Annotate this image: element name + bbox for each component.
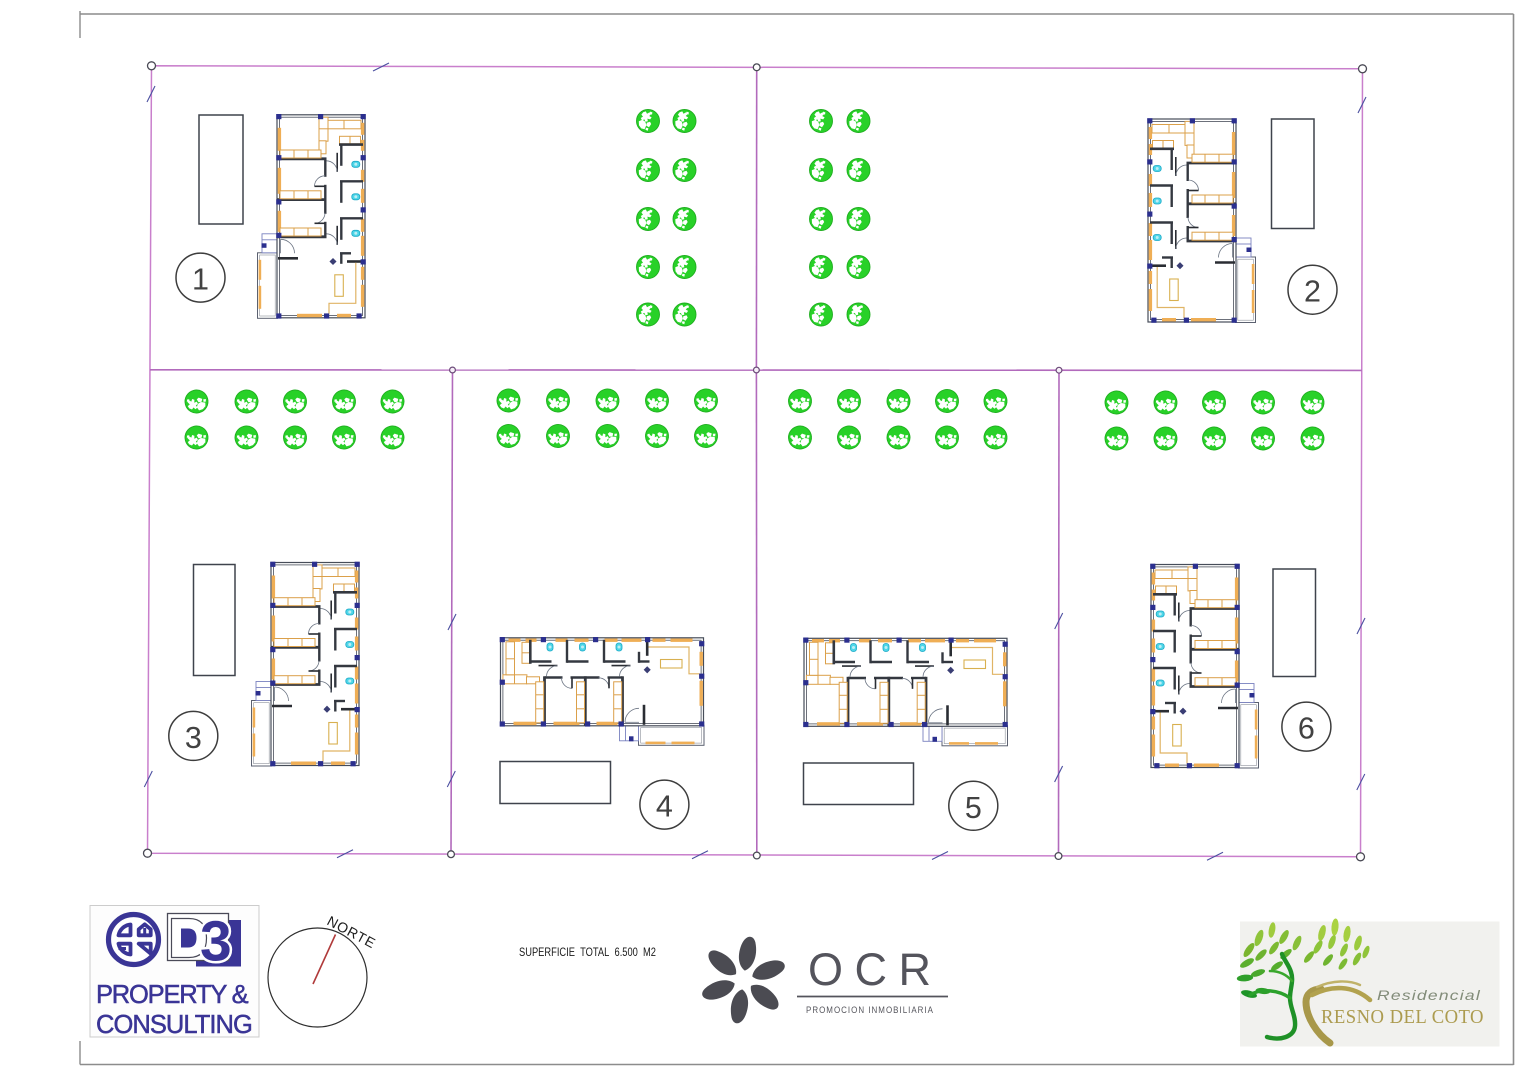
svg-text:6: 6 [1298, 712, 1315, 746]
svg-text:1: 1 [192, 263, 209, 297]
svg-text:5: 5 [965, 791, 982, 825]
svg-text:CONSULTING: CONSULTING [96, 1011, 253, 1039]
svg-text:OCR: OCR [808, 944, 943, 995]
svg-text:SUPERFICIE TOTAL 6.500 M2: SUPERFICIE TOTAL 6.500 M2 [519, 945, 656, 959]
svg-text:4: 4 [656, 790, 673, 824]
svg-text:2: 2 [1304, 275, 1321, 309]
svg-text:PROMOCION INMOBILIARIA: PROMOCION INMOBILIARIA [806, 1005, 934, 1016]
svg-text:Residencial: Residencial [1377, 987, 1481, 1003]
svg-text:RESNO DEL COTO: RESNO DEL COTO [1321, 1006, 1484, 1028]
svg-text:3: 3 [185, 721, 202, 755]
svg-text:3: 3 [200, 910, 232, 974]
svg-text:PROPERTY &: PROPERTY & [96, 981, 249, 1009]
